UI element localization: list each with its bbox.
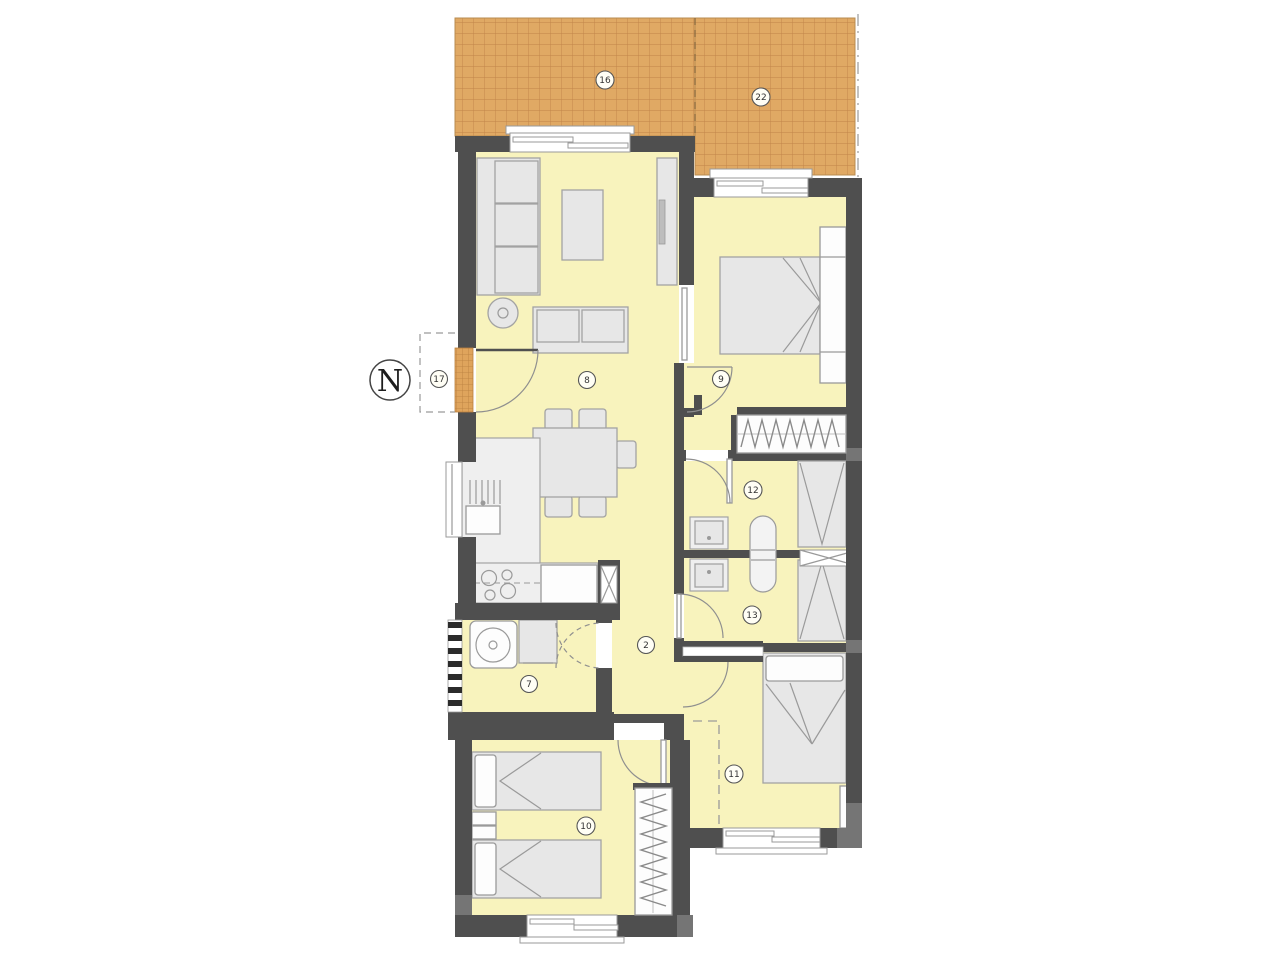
entrance-threshold-tiles <box>455 348 473 412</box>
shower-12 <box>798 461 846 547</box>
north-compass: N <box>370 360 410 400</box>
label-utility-7: 7 <box>521 676 538 693</box>
tv-cabinet <box>657 158 677 285</box>
terrace-left-16 <box>455 18 695 136</box>
label-bedroom-9: 9 <box>713 371 730 388</box>
wardrobe-bedroom-9 <box>737 415 846 453</box>
svg-text:17: 17 <box>433 375 444 385</box>
kitchen-appliance <box>541 565 597 603</box>
kitchen-window <box>446 462 462 537</box>
bedroom-9-window <box>710 169 812 197</box>
back-to-back-toilets <box>750 516 776 592</box>
label-bathroom-12: 12 <box>744 481 762 499</box>
coffee-table <box>562 190 603 260</box>
kitchen-sink <box>466 506 500 534</box>
svg-text:22: 22 <box>755 93 766 103</box>
utility-appliance <box>519 620 557 663</box>
bedroom-10-window <box>520 915 624 943</box>
pillow-11 <box>766 656 843 681</box>
louver-strip <box>448 620 462 712</box>
label-living-8: 8 <box>579 372 596 389</box>
label-bathroom-13: 13 <box>743 606 761 624</box>
side-table <box>488 298 518 328</box>
svg-text:13: 13 <box>746 611 757 621</box>
svg-text:10: 10 <box>580 822 592 832</box>
svg-text:7: 7 <box>526 680 532 690</box>
sofa <box>477 158 540 295</box>
terrace-right-22 <box>695 18 855 175</box>
floor-plan: N 16 22 17 8 9 12 13 2 7 10 11 <box>0 0 1280 960</box>
washing-machine <box>470 621 517 668</box>
shower-13 <box>798 560 846 641</box>
svg-text:8: 8 <box>584 376 590 386</box>
duct-shaft-kitchen <box>601 566 617 603</box>
headboard-nightstands <box>820 227 846 383</box>
loveseat <box>533 307 628 353</box>
label-entrance-17: 17 <box>431 371 448 388</box>
label-bedroom-11: 11 <box>725 765 743 783</box>
sink-12 <box>690 517 728 549</box>
bedroom-11-window <box>716 828 827 854</box>
label-terrace-22: 22 <box>752 88 770 106</box>
svg-text:11: 11 <box>728 770 739 780</box>
bedside-shelf <box>472 826 496 839</box>
label-bedroom-10: 10 <box>577 817 595 835</box>
bedside-shelf <box>472 812 496 825</box>
compass-letter: N <box>377 364 403 399</box>
sink-13 <box>690 559 728 591</box>
svg-text:9: 9 <box>718 375 724 385</box>
single-bed-bottom <box>472 840 601 898</box>
label-hallway-2: 2 <box>638 637 655 654</box>
dining-table <box>533 428 617 497</box>
single-bed-top <box>472 752 601 810</box>
svg-text:16: 16 <box>599 76 611 86</box>
label-terrace-16: 16 <box>596 71 614 89</box>
svg-text:2: 2 <box>643 641 649 651</box>
living-room-window <box>506 126 634 152</box>
utility-room-furniture <box>470 620 557 668</box>
svg-text:12: 12 <box>747 486 758 496</box>
bedroom-11-sliding-door <box>683 641 763 662</box>
